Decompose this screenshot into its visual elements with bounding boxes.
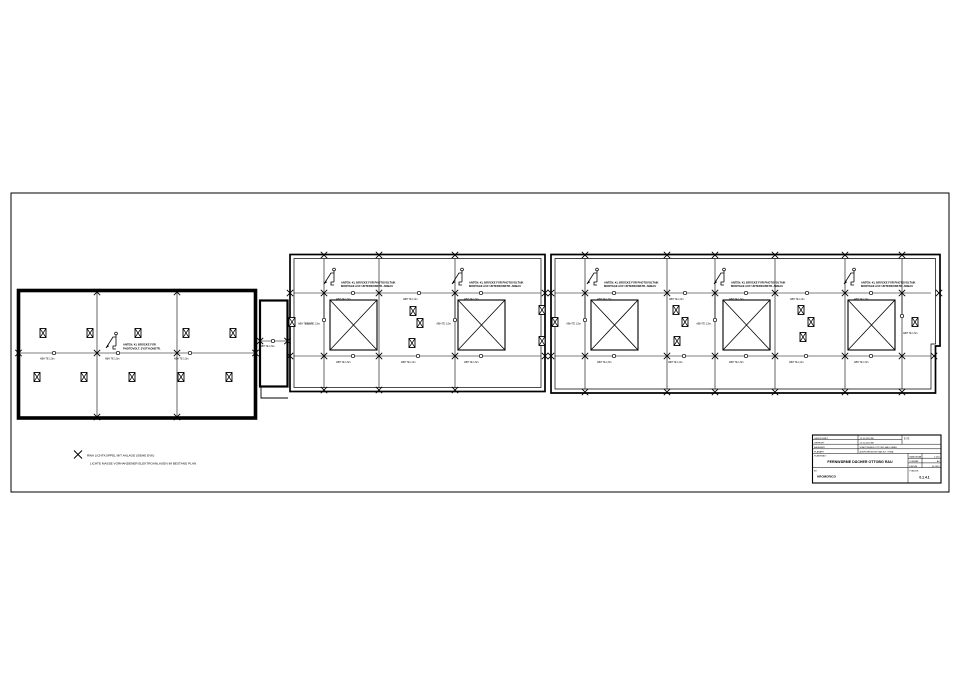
connector-corridor: ABH TE 1,5m [257,301,291,399]
tb-scale-label: MASSSTAB [910,455,922,458]
fixture-label: ABH TE 1,5m [597,298,612,301]
tb-scale-value: 1:100 [934,456,940,458]
annotation-line1: ANTEN. KL BRÜCKE FÜR PHOTOVOLTAIK [861,281,916,285]
tb-plan-no: 0.1.4.1 [919,476,929,480]
fixture-label: ABH TE 1,5m [566,323,581,326]
tb-drawing-title: FERNWÄRME DÄCHER OTTOBG RAU [827,460,893,464]
fixture-label: ABH TE 1,5m [298,323,313,326]
fixture-label: ABH TE 1,5m [854,361,869,364]
leader-arrow-icon [106,332,117,349]
tb-row2-value: 12.10.2023 BK [860,442,875,444]
tb-date-label: DATUM [910,465,918,468]
fixture-label: ABH TE 1,0m [669,298,684,301]
annotation-line1: ANTEN. KL BRÜCKE FÜR PHOTOVOLTAIK [469,281,524,285]
fixture-label: ABH TE 1,5m [729,361,744,364]
fixture-label: ABH TE 1,5m [729,298,744,301]
leader-arrow-icon [587,268,598,285]
drawing-sheet: ABH TE 1,5m ABH TE 1,5m ABH TE 1,5m ANTE… [0,0,960,678]
tb-revision: E 03 [904,437,910,441]
tb-row3-value: STADTWERKE OTTOBG RAU GMBH [860,446,898,449]
fixture-label: ABH TE 1,5m [336,361,351,364]
annotation-line1: ANTEN. KL BRÜCKE FÜR PHOTOVOLTAIK [604,281,659,285]
fixture-label: ABH TE 1,5m [854,298,869,301]
fixture-label: ABH TE 1,5m [464,298,479,301]
leader-arrow-icon [844,268,855,285]
fixture-label: ABH TE 1,5m [105,358,120,361]
leader-arrow-icon [714,268,725,285]
annotation-line1: ANTEN. KL BRÜCKE FÜR PHOTOVOLTAIK [341,281,396,285]
roof-annotations: ANTEN. KL BRÜCKE FÜR PHOTOVOLTAIK MONTAG… [324,268,916,288]
annotation-line2: MONTAGE AUF UNTERKONSTR. ANBAU [604,284,656,288]
fixture-label: ABH TE 1,5m [464,361,479,364]
leader-arrow-icon [452,268,463,285]
tb-row4-label: PLANART [814,451,825,454]
annotation-line1: ANTEN. KL BRÜCKE FÜR PHOTOVOLTAIK [731,281,786,285]
corridor-step-lines [261,388,288,399]
annotation-line2: MONTAGE AUF UNTERKONSTR. ANBAU [731,284,783,288]
fixture-label: ABH TE 1,5m [174,358,189,361]
fixture-label: ABH TE 1,5m [696,323,711,326]
annotation-line2: PHOTOVOLT. SYST-KONSTR. [123,346,161,350]
fixture-label: ABH TE 1,0m [401,361,416,364]
tb-row3-label: BAUHERR [814,446,825,449]
legend-line1: RWA LICHTKUPPEL MIT ANLAGE (SIEHE EVK) [87,454,154,458]
left-building: ABH TE 1,5m ABH TE 1,5m ABH TE 1,5m ANTE… [15,289,258,420]
tb-row1-label: GEZEICHNET [814,438,829,440]
fixture-label: ABH TE 1,5m [336,298,351,301]
tb-row1-value: 12.10.2023 BK [860,438,875,440]
fixture-label: ABH TE 1,0m [789,361,804,364]
annotation-line2: MONTAGE AUF UNTERKONSTR. ANBAU [469,284,521,288]
left-building-annotation: ANTEN. KL BRÜCKE FÜR PHOTOVOLT. SYST-KON… [106,332,161,350]
fixture-label: ABH TE 1,5m [597,361,612,364]
corridor-outline [260,301,288,387]
legend-line2: LICHTE MASSE VORHANDENER ELEKTROANLAGEN … [90,462,196,466]
title-block: GEZEICHNET 12.10.2023 BK GEPRÜFT 12.10.2… [813,435,942,483]
annotation-line2: MONTAGE AUF UNTERKONSTR. ANBAU [341,284,393,288]
annotation-line1: ANTEN. KL BRÜCKE FÜR [123,343,156,347]
legend: RWA LICHTKUPPEL MIT ANLAGE (SIEHE EVK) L… [74,451,196,466]
tb-date-value: 10.2023 [932,466,941,468]
tb-company-label: BV: [814,471,818,473]
floor-plan-drawing: ABH TE 1,5m ABH TE 1,5m ABH TE 1,5m ANTE… [0,0,960,678]
left-building-fixture-boxes [34,329,236,382]
fixture-label: ABH TE 1,0m [403,298,418,301]
fixture-label: ABH TE 1,0m [790,298,805,301]
fixture-label: ABH TE 1,5m [903,332,918,335]
annotation-line2: MONTAGE AUF UNTERKONSTR. ANBAU [861,284,913,288]
tb-format-label: FORMAT [910,460,920,463]
legend-x-symbol-icon [74,451,82,459]
fixture-label: ABH TE 1,5m [40,358,55,361]
tb-title-label: PLANINHALT [814,455,827,458]
tb-row2-label: GEPRÜFT [814,441,825,444]
fixture-label: ABH TE 1,5m [260,345,275,348]
fixture-label: ABH TE 1,5m [436,323,451,326]
tb-company: HROMORICO [817,475,837,479]
leader-arrow-icon [324,268,335,285]
tb-plan-no-label: PLAN-NR. [910,470,920,473]
tb-row4-value: AUSFÜHRUNGSPLAN ELT / RWA [860,451,894,454]
fixture-label: ABH TE 1,0m [668,361,683,364]
right-building: ABH TE 1,5m ABH TE 1,5m ABH TE 1,5m ABH … [287,252,942,395]
left-building-tick-marks [15,289,258,420]
